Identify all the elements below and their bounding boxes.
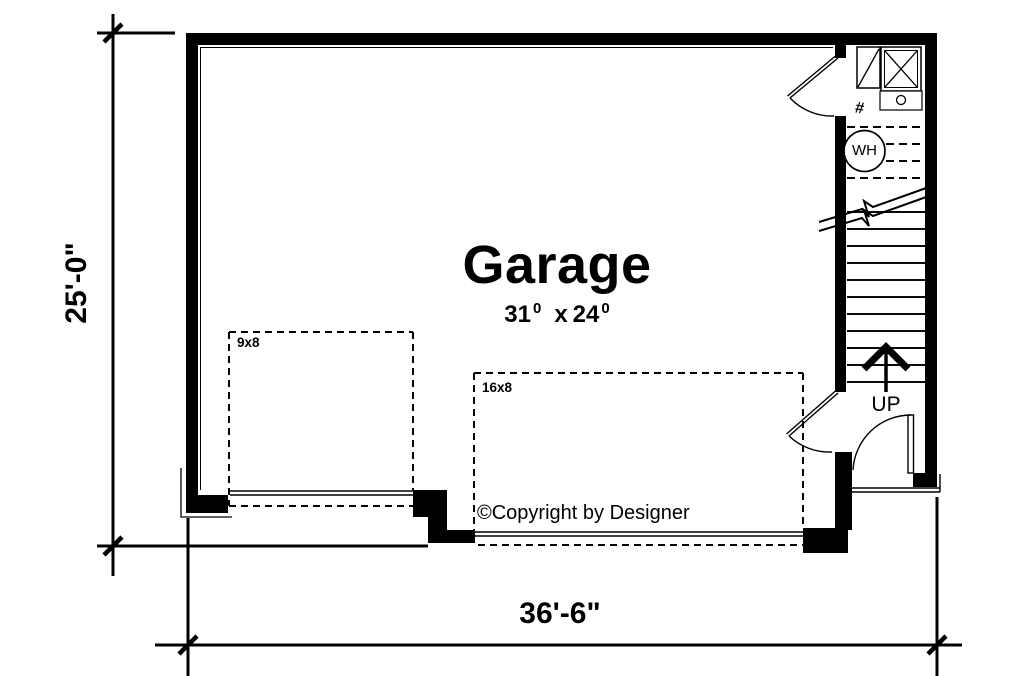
dimension-lines xyxy=(97,14,962,676)
door-swing-arc xyxy=(789,436,832,452)
room-size: 310x240 xyxy=(407,301,707,329)
copyright-text: ©Copyright by Designer xyxy=(477,502,690,525)
room-title: Garage xyxy=(357,234,757,296)
door-swing-arc xyxy=(790,98,834,116)
dimension-ticks xyxy=(104,24,946,654)
garage-door-16x8-label: 16x8 xyxy=(482,380,512,395)
furnace-icon xyxy=(881,47,921,91)
utility-sink xyxy=(880,91,922,110)
door-exterior-rear xyxy=(853,415,914,473)
floorplan-drawing xyxy=(0,0,1024,676)
floor-plan: Garage 310x240 9x8 16x8 UP WH # ©Copyrig… xyxy=(0,0,1024,676)
room-size-inches-b: 0 xyxy=(601,300,609,317)
fixture-diagonal-box xyxy=(857,47,880,88)
room-size-inches-a: 0 xyxy=(533,300,541,317)
stairs-up-arrow xyxy=(864,347,908,392)
garage-door-9x8-label: 9x8 xyxy=(237,335,260,350)
door-swing-arc xyxy=(853,415,911,470)
interior-wall xyxy=(835,45,846,392)
door-top-interior xyxy=(788,56,839,116)
room-size-feet-a: 31 xyxy=(504,301,531,328)
garage-door-9x8-outline xyxy=(229,332,413,506)
dimension-width-label: 36'-6" xyxy=(445,597,675,631)
dimension-height-label: 25'-0" xyxy=(60,242,94,323)
room-size-separator: x xyxy=(554,301,567,328)
water-heater-label: WH xyxy=(844,142,885,159)
door-bottom-interior xyxy=(787,391,839,452)
room-size-feet-b: 24 xyxy=(573,301,600,328)
stairs-up-label: UP xyxy=(864,393,908,417)
